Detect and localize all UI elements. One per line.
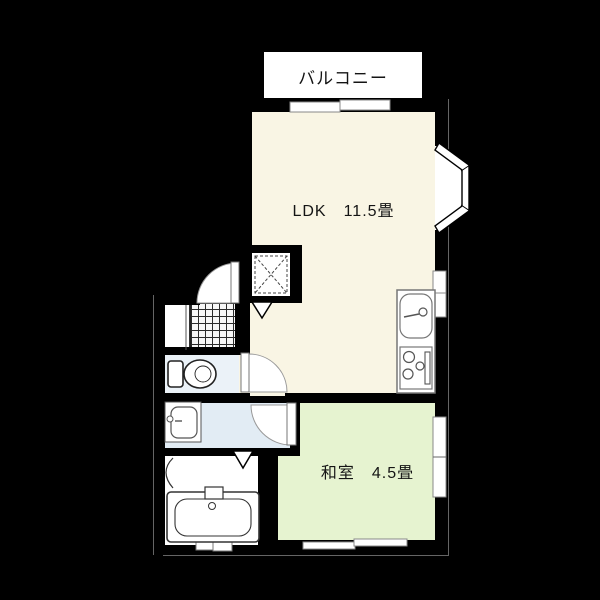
washroom-door-icon <box>251 403 296 445</box>
washbasin-icon <box>165 402 201 442</box>
washitsu-bottom-window-icon <box>303 539 407 549</box>
bath-door-triangle-icon <box>233 451 253 468</box>
toilet-door-icon <box>241 353 287 392</box>
bay-window-icon <box>435 143 470 233</box>
closet-x-icon <box>255 256 287 293</box>
floorplan-canvas: バルコニー LDK 11.5畳 和室 4.5畳 <box>0 0 600 600</box>
balcony-label: バルコニー <box>262 64 424 89</box>
balcony-sliding-window-icon <box>290 100 390 112</box>
entrance-triangle-icon <box>252 302 272 318</box>
ldk-label: LDK 11.5畳 <box>252 197 435 221</box>
entrance-door-icon <box>197 262 239 303</box>
bathtub-icon <box>166 458 259 542</box>
washitsu-label: 和室 4.5畳 <box>300 459 435 483</box>
fixtures-overlay <box>0 0 600 600</box>
toilet-icon <box>168 360 216 388</box>
kitchen-counter-icon <box>397 290 435 393</box>
washitsu-side-window-icon <box>433 417 446 497</box>
